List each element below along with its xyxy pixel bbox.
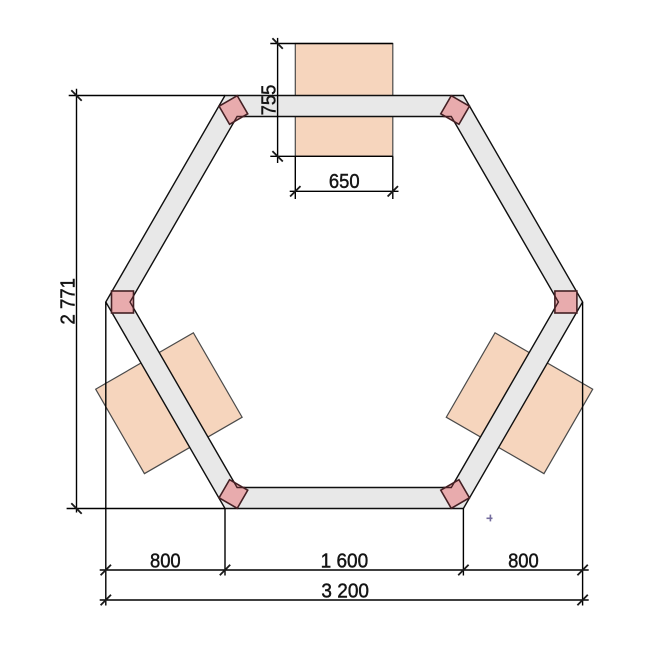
svg-text:650: 650 xyxy=(329,171,360,193)
svg-text:2 771: 2 771 xyxy=(58,278,80,325)
svg-text:800: 800 xyxy=(150,551,181,573)
svg-text:755: 755 xyxy=(259,85,281,116)
svg-text:1 600: 1 600 xyxy=(321,550,369,573)
svg-text:3 200: 3 200 xyxy=(321,580,369,603)
svg-text:800: 800 xyxy=(508,551,539,573)
